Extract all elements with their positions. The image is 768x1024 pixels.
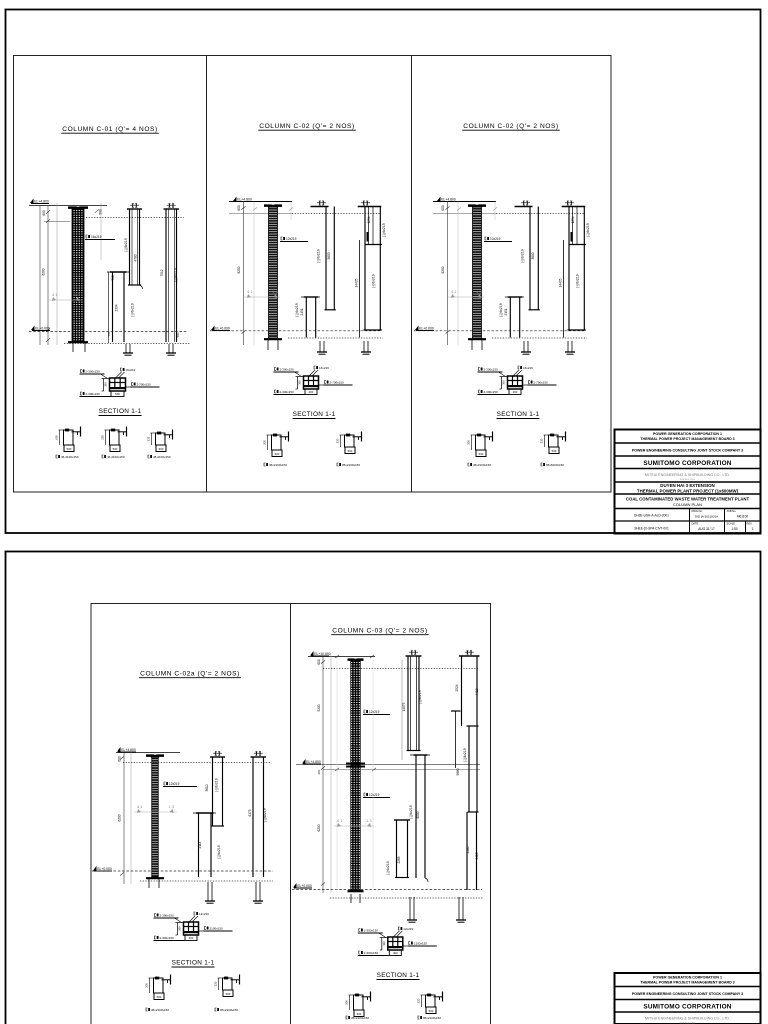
svg-text:320: 320 <box>214 981 218 986</box>
svg-text:1 3: 1 3 <box>366 818 372 823</box>
svg-text:[-] 6x219: [-] 6x219 <box>386 861 390 874</box>
svg-text:14425: 14425 <box>355 278 359 287</box>
svg-text:SHEE-[X-SPA-CIVT-001: SHEE-[X-SPA-CIVT-001 <box>634 527 669 531</box>
svg-text:COLUMN C-03 (Q'= 2 NOS): COLUMN C-03 (Q'= 2 NOS) <box>332 628 427 635</box>
svg-text:2-300x150: 2-300x150 <box>484 390 499 394</box>
svg-text:16x219: 16x219 <box>523 366 533 370</box>
svg-text:700: 700 <box>111 275 115 281</box>
svg-text:400: 400 <box>513 390 518 394</box>
svg-text:2-300x150: 2-300x150 <box>484 368 499 372</box>
svg-text:THERMAL POWER PROJECT MANAGEME: THERMAL POWER PROJECT MANAGEMENT BOARD 3 <box>640 437 734 441</box>
svg-text:2524: 2524 <box>455 684 459 691</box>
svg-text:600: 600 <box>42 210 46 216</box>
svg-text:1: 1 <box>752 527 754 531</box>
svg-text:2114: 2114 <box>198 841 202 848</box>
svg-text:400: 400 <box>309 390 314 394</box>
svg-text:THERMAL POWER PLANT PROJECT (1: THERMAL POWER PLANT PROJECT (1x600MW) <box>637 488 739 493</box>
svg-text:2285: 2285 <box>397 856 401 863</box>
svg-text:2-700x150: 2-700x150 <box>137 383 152 387</box>
svg-text:6200: 6200 <box>441 266 445 273</box>
svg-text:48-2100x150: 48-2100x150 <box>153 455 171 459</box>
svg-text:1 3: 1 3 <box>74 292 80 297</box>
svg-text:2-300x150: 2-300x150 <box>280 390 295 394</box>
svg-text:95x8100x150: 95x8100x150 <box>546 463 564 467</box>
svg-text:300: 300 <box>382 941 386 946</box>
svg-text:MITSUI ENGINEERING & SHIPBUILD: MITSUI ENGINEERING & SHIPBUILDING CO., L… <box>645 473 730 477</box>
svg-text:2334: 2334 <box>115 304 119 311</box>
svg-text:6000: 6000 <box>416 811 420 818</box>
svg-text:500: 500 <box>107 331 111 336</box>
svg-text:[-] 6x219: [-] 6x219 <box>131 303 135 316</box>
svg-text:COLUMN C-02a (Q'= 2 NOS): COLUMN C-02a (Q'= 2 NOS) <box>140 671 240 678</box>
svg-text:2-700x150: 2-700x150 <box>330 381 345 385</box>
svg-text:3610: 3610 <box>205 784 209 791</box>
svg-text:4 1: 4 1 <box>247 289 253 294</box>
svg-text:2100x150: 2100x150 <box>414 942 428 946</box>
svg-text:6200: 6200 <box>317 824 321 831</box>
svg-text:POWER ENGINEERING CONSULTING J: POWER ENGINEERING CONSULTING JOINT STOCK… <box>632 992 743 996</box>
svg-text:12x219: 12x219 <box>286 237 297 241</box>
svg-text:COLUMN C-01 (Q'= 4 NOS): COLUMN C-01 (Q'= 4 NOS) <box>62 126 157 133</box>
svg-text:EL+0.000: EL+0.000 <box>419 327 434 331</box>
svg-text:COLUMN C-02 (Q'= 2 NOS): COLUMN C-02 (Q'= 2 NOS) <box>259 123 354 130</box>
svg-text:300: 300 <box>298 380 302 385</box>
svg-text:1234: 1234 <box>367 216 371 223</box>
svg-text:[-] 6x219: [-] 6x219 <box>382 223 386 236</box>
svg-text:EL+4.800: EL+4.800 <box>34 200 49 204</box>
svg-text:2-300x150: 2-300x150 <box>86 392 101 396</box>
svg-text:SCALE: SCALE <box>727 522 736 526</box>
svg-text:95x2100x150: 95x2100x150 <box>342 463 360 467</box>
svg-text:300: 300 <box>467 440 471 445</box>
svg-text:2-300x150: 2-300x150 <box>160 914 175 918</box>
svg-text:12x219: 12x219 <box>199 912 209 916</box>
svg-text:12x219: 12x219 <box>369 793 380 797</box>
svg-text:JOB No.: JOB No. <box>727 509 737 513</box>
svg-text:600: 600 <box>317 659 321 665</box>
svg-text:[-] 6x219: [-] 6x219 <box>521 249 525 262</box>
svg-text:300: 300 <box>178 926 182 931</box>
svg-text:SECTION 1-1: SECTION 1-1 <box>172 960 215 967</box>
svg-text:EL+0.000: EL+0.000 <box>297 884 312 888</box>
svg-text:SECTION 1-1: SECTION 1-1 <box>497 411 540 418</box>
svg-text:320: 320 <box>101 435 105 440</box>
svg-text:MITSUI ENGINEERING & SHIPBUILD: MITSUI ENGINEERING & SHIPBUILDING CO., L… <box>645 1017 730 1021</box>
svg-text:16x219: 16x219 <box>319 366 329 370</box>
svg-text:[-] 6x219: [-] 6x219 <box>499 303 503 316</box>
svg-text:500: 500 <box>479 452 484 456</box>
svg-text:4700: 4700 <box>134 254 138 261</box>
svg-text:2100x150: 2100x150 <box>210 927 224 931</box>
svg-text:6200: 6200 <box>118 814 122 821</box>
svg-text:DWG No.: DWG No. <box>692 509 703 513</box>
svg-text:500: 500 <box>226 992 231 996</box>
svg-text:45x2100x150: 45x2100x150 <box>151 1008 169 1012</box>
svg-text:600: 600 <box>441 205 445 211</box>
svg-text:[-] 6x219: [-] 6x219 <box>409 805 413 818</box>
svg-text:45x2100x150: 45x2100x150 <box>351 1016 369 1020</box>
svg-text:600: 600 <box>237 205 241 211</box>
svg-text:2480: 2480 <box>466 846 470 853</box>
svg-text:EL+4.800: EL+4.800 <box>121 748 136 752</box>
svg-text:[-] 6x219: [-] 6x219 <box>295 303 299 316</box>
svg-text:EL+0.000: EL+0.000 <box>35 327 50 331</box>
svg-text:500: 500 <box>429 1009 434 1013</box>
svg-text:500: 500 <box>348 449 353 453</box>
svg-text:300: 300 <box>263 440 267 445</box>
svg-text:EL+4.800: EL+4.800 <box>237 198 252 202</box>
svg-text:DATE: DATE <box>692 522 699 526</box>
svg-text:500: 500 <box>113 447 118 451</box>
svg-text:REV: REV <box>747 522 753 526</box>
svg-text:SUMITOMO CORPORATION: SUMITOMO CORPORATION <box>643 1004 731 1011</box>
svg-text:[-] 6x219: [-] 6x219 <box>215 778 219 791</box>
svg-text:2-300x150: 2-300x150 <box>364 929 379 933</box>
svg-text:45x3100x150: 45x3100x150 <box>473 463 491 467</box>
svg-text:4 1: 4 1 <box>137 804 143 809</box>
svg-text:SECTION 1-1: SECTION 1-1 <box>293 411 336 418</box>
svg-text:DH3E-USH-A-ALD-2001: DH3E-USH-A-ALD-2001 <box>634 514 669 518</box>
svg-text:320: 320 <box>336 438 340 443</box>
svg-text:COAL CONTAMINATED WASTE WATER: COAL CONTAMINATED WASTE WATER TREATMENT … <box>626 496 750 501</box>
svg-text:[-] 6x219: [-] 6x219 <box>263 808 267 821</box>
svg-text:1:50: 1:50 <box>731 527 737 531</box>
svg-text:600: 600 <box>317 769 321 774</box>
svg-text:[-] 6x219: [-] 6x219 <box>576 274 580 287</box>
svg-text:5200: 5200 <box>317 704 321 711</box>
svg-text:4415: 4415 <box>475 852 479 859</box>
svg-text:[-] 6x219: [-] 6x219 <box>217 845 221 858</box>
svg-text:2-300x150: 2-300x150 <box>280 368 295 372</box>
svg-text:EL+4.800: EL+4.800 <box>306 760 321 764</box>
svg-text:7512: 7512 <box>160 269 164 276</box>
svg-text:2-300x150: 2-300x150 <box>86 370 101 374</box>
svg-text:600: 600 <box>118 756 122 762</box>
svg-text:5880: 5880 <box>456 768 460 775</box>
svg-text:400: 400 <box>393 951 398 955</box>
svg-text:EL+0.000: EL+0.000 <box>215 327 230 331</box>
svg-text:POWER GENERATION CORPORATION 1: POWER GENERATION CORPORATION 1 <box>653 432 722 436</box>
svg-text:6175: 6175 <box>248 809 252 816</box>
svg-text:[-] 8x219: [-] 8x219 <box>463 748 467 761</box>
svg-text:14425: 14425 <box>559 278 563 287</box>
svg-text:335: 335 <box>147 436 151 441</box>
svg-text:12x219: 12x219 <box>403 927 413 931</box>
svg-text:6200: 6200 <box>237 266 241 273</box>
svg-text:[-] 8x219: [-] 8x219 <box>174 268 178 281</box>
svg-text:16x219: 16x219 <box>91 235 102 239</box>
svg-text:[-] 8x219: [-] 8x219 <box>124 238 128 251</box>
svg-text:SUMITOMO CORPORATION: SUMITOMO CORPORATION <box>643 460 731 467</box>
svg-text:THERMAL POWER PROJECT MANAGEME: THERMAL POWER PROJECT MANAGEMENT BOARD 3 <box>640 981 734 985</box>
svg-text:4 1: 4 1 <box>337 818 343 823</box>
svg-text:500: 500 <box>157 995 162 999</box>
svg-text:2151: 2151 <box>504 308 508 315</box>
svg-text:46-2100x150: 46-2100x150 <box>107 455 125 459</box>
svg-text:500: 500 <box>115 392 120 396</box>
svg-text:AUG 31 '17: AUG 31 '17 <box>698 527 715 531</box>
svg-text:300: 300 <box>145 983 149 988</box>
svg-text:4 1: 4 1 <box>52 292 58 297</box>
svg-text:300: 300 <box>345 1000 349 1005</box>
svg-text:500: 500 <box>176 332 180 337</box>
svg-text:EL+0.000: EL+0.000 <box>97 867 112 871</box>
svg-text:[-] 6x219: [-] 6x219 <box>317 249 321 262</box>
svg-text:320: 320 <box>417 998 421 1003</box>
svg-text:300: 300 <box>502 380 506 385</box>
svg-text:SHIPBUILDING: SHIPBUILDING <box>680 479 696 481</box>
svg-text:EL+10.600: EL+10.600 <box>314 652 331 656</box>
svg-text:95x2100x150: 95x2100x150 <box>423 1016 441 1020</box>
svg-text:500: 500 <box>275 452 280 456</box>
svg-text:POWER ENGINEERING CONSULTING J: POWER ENGINEERING CONSULTING JOINT STOCK… <box>632 449 743 453</box>
svg-text:DID [A-2011001A: DID [A-2011001A <box>695 515 718 519</box>
svg-text:[-] 8x219: [-] 8x219 <box>418 690 422 703</box>
svg-text:2151: 2151 <box>300 308 304 315</box>
svg-text:4410: 4410 <box>475 688 479 695</box>
svg-text:2-700x150: 2-700x150 <box>534 381 549 385</box>
svg-text:4 1: 4 1 <box>451 289 457 294</box>
svg-text:45x2100x150: 45x2100x150 <box>269 463 287 467</box>
svg-text:POWER GENERATION CORPORATION 1: POWER GENERATION CORPORATION 1 <box>653 976 722 980</box>
svg-text:1 3: 1 3 <box>272 289 278 294</box>
svg-text:500: 500 <box>67 447 72 451</box>
svg-text:3600: 3600 <box>327 252 331 259</box>
svg-text:500: 500 <box>552 449 557 453</box>
svg-text:300: 300 <box>104 382 108 387</box>
svg-text:6200: 6200 <box>42 268 46 275</box>
svg-text:COLUMN PLAN: COLUMN PLAN <box>673 502 702 507</box>
svg-text:COLUMN C-02 (Q'= 2 NOS): COLUMN C-02 (Q'= 2 NOS) <box>463 123 558 130</box>
svg-text:2-300x150: 2-300x150 <box>160 936 175 940</box>
svg-text:14075: 14075 <box>402 702 406 711</box>
svg-text:12x219: 12x219 <box>490 237 501 241</box>
svg-text:[-] 6x219: [-] 6x219 <box>372 274 376 287</box>
svg-text:1234: 1234 <box>571 216 575 223</box>
svg-text:400: 400 <box>189 936 194 940</box>
svg-text:SECTION 1-1: SECTION 1-1 <box>99 408 142 415</box>
svg-text:1 3: 1 3 <box>169 804 175 809</box>
svg-text:45-2100x150: 45-2100x150 <box>61 455 79 459</box>
svg-text:M61100: M61100 <box>737 515 749 519</box>
svg-text:2-300x150: 2-300x150 <box>364 951 379 955</box>
svg-text:3600: 3600 <box>531 252 535 259</box>
svg-text:EL+4.800: EL+4.800 <box>441 198 456 202</box>
svg-text:16x219: 16x219 <box>126 368 136 372</box>
svg-text:12x219: 12x219 <box>169 782 180 786</box>
svg-text:95x2100x150: 95x2100x150 <box>220 1008 238 1012</box>
svg-text:630: 630 <box>55 435 59 440</box>
svg-text:12x219: 12x219 <box>369 710 380 714</box>
svg-text:500: 500 <box>99 209 103 215</box>
svg-text:SECTION 1-1: SECTION 1-1 <box>377 972 420 979</box>
svg-text:[-] 6x219: [-] 6x219 <box>586 223 590 236</box>
svg-text:1 3: 1 3 <box>476 289 482 294</box>
svg-text:320: 320 <box>540 438 544 443</box>
svg-text:500: 500 <box>159 447 164 451</box>
